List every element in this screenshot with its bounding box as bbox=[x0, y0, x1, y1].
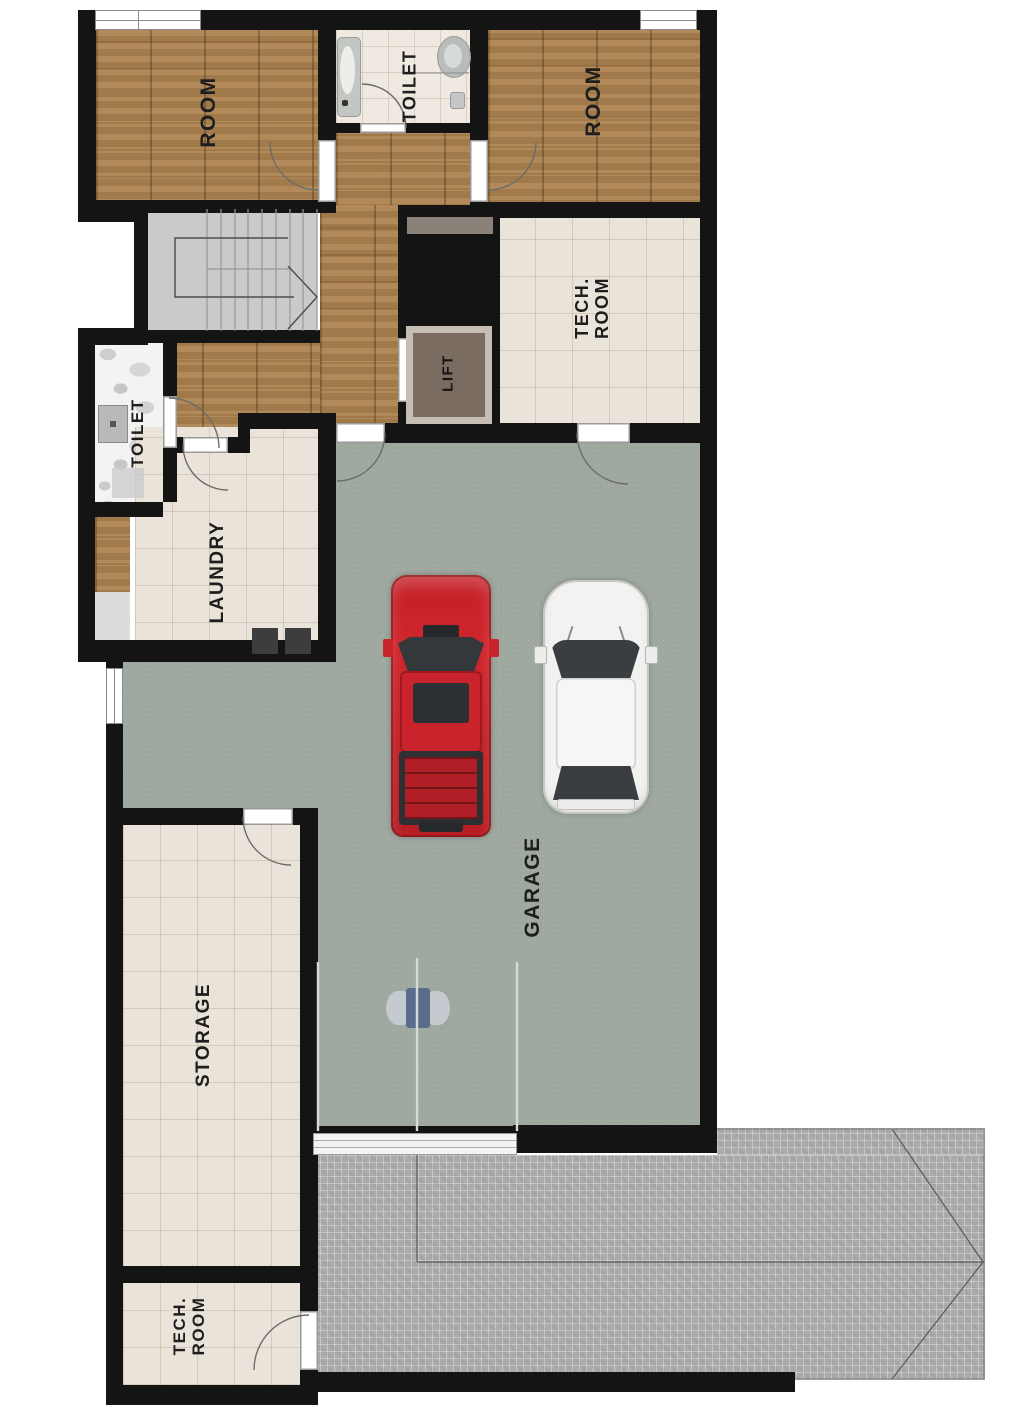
wc-lid bbox=[340, 46, 355, 94]
truck-bed bbox=[405, 757, 477, 819]
wall-segment bbox=[300, 808, 318, 1270]
suv-tailgate bbox=[557, 799, 635, 810]
room-top-right-label: ROOM bbox=[582, 65, 606, 136]
toilet-left-sink bbox=[98, 405, 128, 443]
garage-door-opener bbox=[386, 988, 450, 1028]
red-truck bbox=[391, 575, 491, 837]
wall-segment bbox=[78, 502, 163, 517]
door-panel-line bbox=[314, 1147, 516, 1148]
hall-floor-upper bbox=[336, 125, 483, 217]
wall-segment bbox=[513, 1125, 717, 1153]
tech-room-lower-label-line1: TECH. bbox=[170, 1297, 189, 1356]
laundry-label: LAUNDRY bbox=[207, 521, 229, 624]
truck-mirror-left bbox=[383, 639, 393, 657]
window-top-left bbox=[95, 10, 201, 30]
room-top-left-label: ROOM bbox=[197, 76, 221, 147]
tech-room-upper-label-line1: TECH. bbox=[572, 277, 592, 339]
truck-hood-vent bbox=[423, 625, 459, 638]
toilet-top-bidet bbox=[450, 92, 465, 109]
sink-drain bbox=[110, 421, 116, 427]
driveway-pavers bbox=[313, 1155, 985, 1380]
truck-windshield bbox=[398, 637, 484, 673]
toilet-left-label: TOILET bbox=[128, 398, 148, 467]
wall-segment bbox=[148, 330, 320, 343]
floor-plan: ROOM TOILET ROOM TECH. ROOM LIFT TOILET … bbox=[0, 0, 1024, 1409]
truck-mirror-right bbox=[489, 639, 499, 657]
truck-tailgate bbox=[419, 822, 463, 832]
suv-mirror-left bbox=[534, 646, 547, 664]
wall-segment bbox=[143, 200, 318, 213]
tech-room-upper-label: TECH. ROOM bbox=[572, 277, 612, 339]
laundry-appliance bbox=[285, 628, 311, 654]
wall-segment bbox=[318, 427, 336, 662]
door-tech-room-lower bbox=[300, 1311, 318, 1370]
wall-segment bbox=[78, 10, 96, 222]
tech-room-lower-floor bbox=[123, 1283, 300, 1385]
lift-label: LIFT bbox=[440, 354, 457, 392]
driveway-pavers-upper bbox=[717, 1128, 985, 1155]
door-toilet-left bbox=[163, 396, 177, 448]
door-panel-line bbox=[314, 1140, 516, 1141]
wall-niche bbox=[407, 217, 493, 234]
window-mullion bbox=[114, 669, 115, 723]
toilet-top-sink bbox=[437, 36, 471, 78]
opener-motor bbox=[406, 988, 430, 1028]
wall-segment bbox=[313, 1372, 795, 1392]
suv-rear-window bbox=[553, 766, 639, 800]
window-mullion bbox=[138, 11, 139, 29]
suv-windshield bbox=[550, 640, 642, 682]
window-mullion bbox=[96, 20, 200, 21]
garage-door bbox=[313, 1133, 517, 1155]
door-hall-to-garage bbox=[336, 423, 385, 443]
tech-room-lower-label-line2: ROOM bbox=[189, 1297, 208, 1356]
wall-segment bbox=[242, 413, 336, 429]
suv-roof bbox=[556, 678, 636, 770]
garage-floor-strip bbox=[318, 808, 336, 1133]
wall-segment bbox=[238, 413, 250, 453]
door-storage bbox=[243, 808, 293, 825]
door-tech-to-garage bbox=[577, 423, 630, 443]
window-top-right bbox=[640, 10, 697, 30]
wall-segment bbox=[106, 1266, 318, 1283]
staircase bbox=[148, 208, 317, 332]
door-laundry bbox=[183, 437, 228, 453]
laundry-appliance bbox=[252, 628, 278, 654]
wall-segment bbox=[106, 1385, 318, 1405]
wall-segment bbox=[134, 205, 148, 332]
wall-segment bbox=[470, 202, 717, 218]
tech-room-upper-label-line2: ROOM bbox=[592, 277, 612, 339]
toilet-top-label: TOILET bbox=[400, 50, 421, 123]
suv-mirror-right bbox=[645, 646, 658, 664]
door-room-top-right bbox=[470, 140, 488, 202]
storage-label: STORAGE bbox=[193, 983, 215, 1087]
wall-segment bbox=[78, 328, 95, 660]
door-toilet-top bbox=[360, 123, 406, 133]
wall-segment bbox=[300, 1283, 318, 1313]
window-garage-left bbox=[106, 668, 123, 724]
door-room-top-left bbox=[318, 140, 336, 202]
wall-segment bbox=[700, 10, 717, 1153]
window-mullion bbox=[641, 20, 696, 21]
white-suv bbox=[543, 580, 649, 814]
wc-button bbox=[342, 100, 348, 106]
tech-room-lower-label: TECH. ROOM bbox=[170, 1297, 208, 1356]
toilet-top-wc bbox=[337, 37, 361, 117]
hall-floor-main bbox=[320, 205, 400, 445]
sink-bowl bbox=[444, 44, 462, 68]
toilet-left-drain bbox=[112, 468, 144, 498]
garage-label: GARAGE bbox=[521, 836, 545, 937]
wall-segment bbox=[106, 662, 123, 1405]
truck-sunroof bbox=[413, 683, 469, 723]
